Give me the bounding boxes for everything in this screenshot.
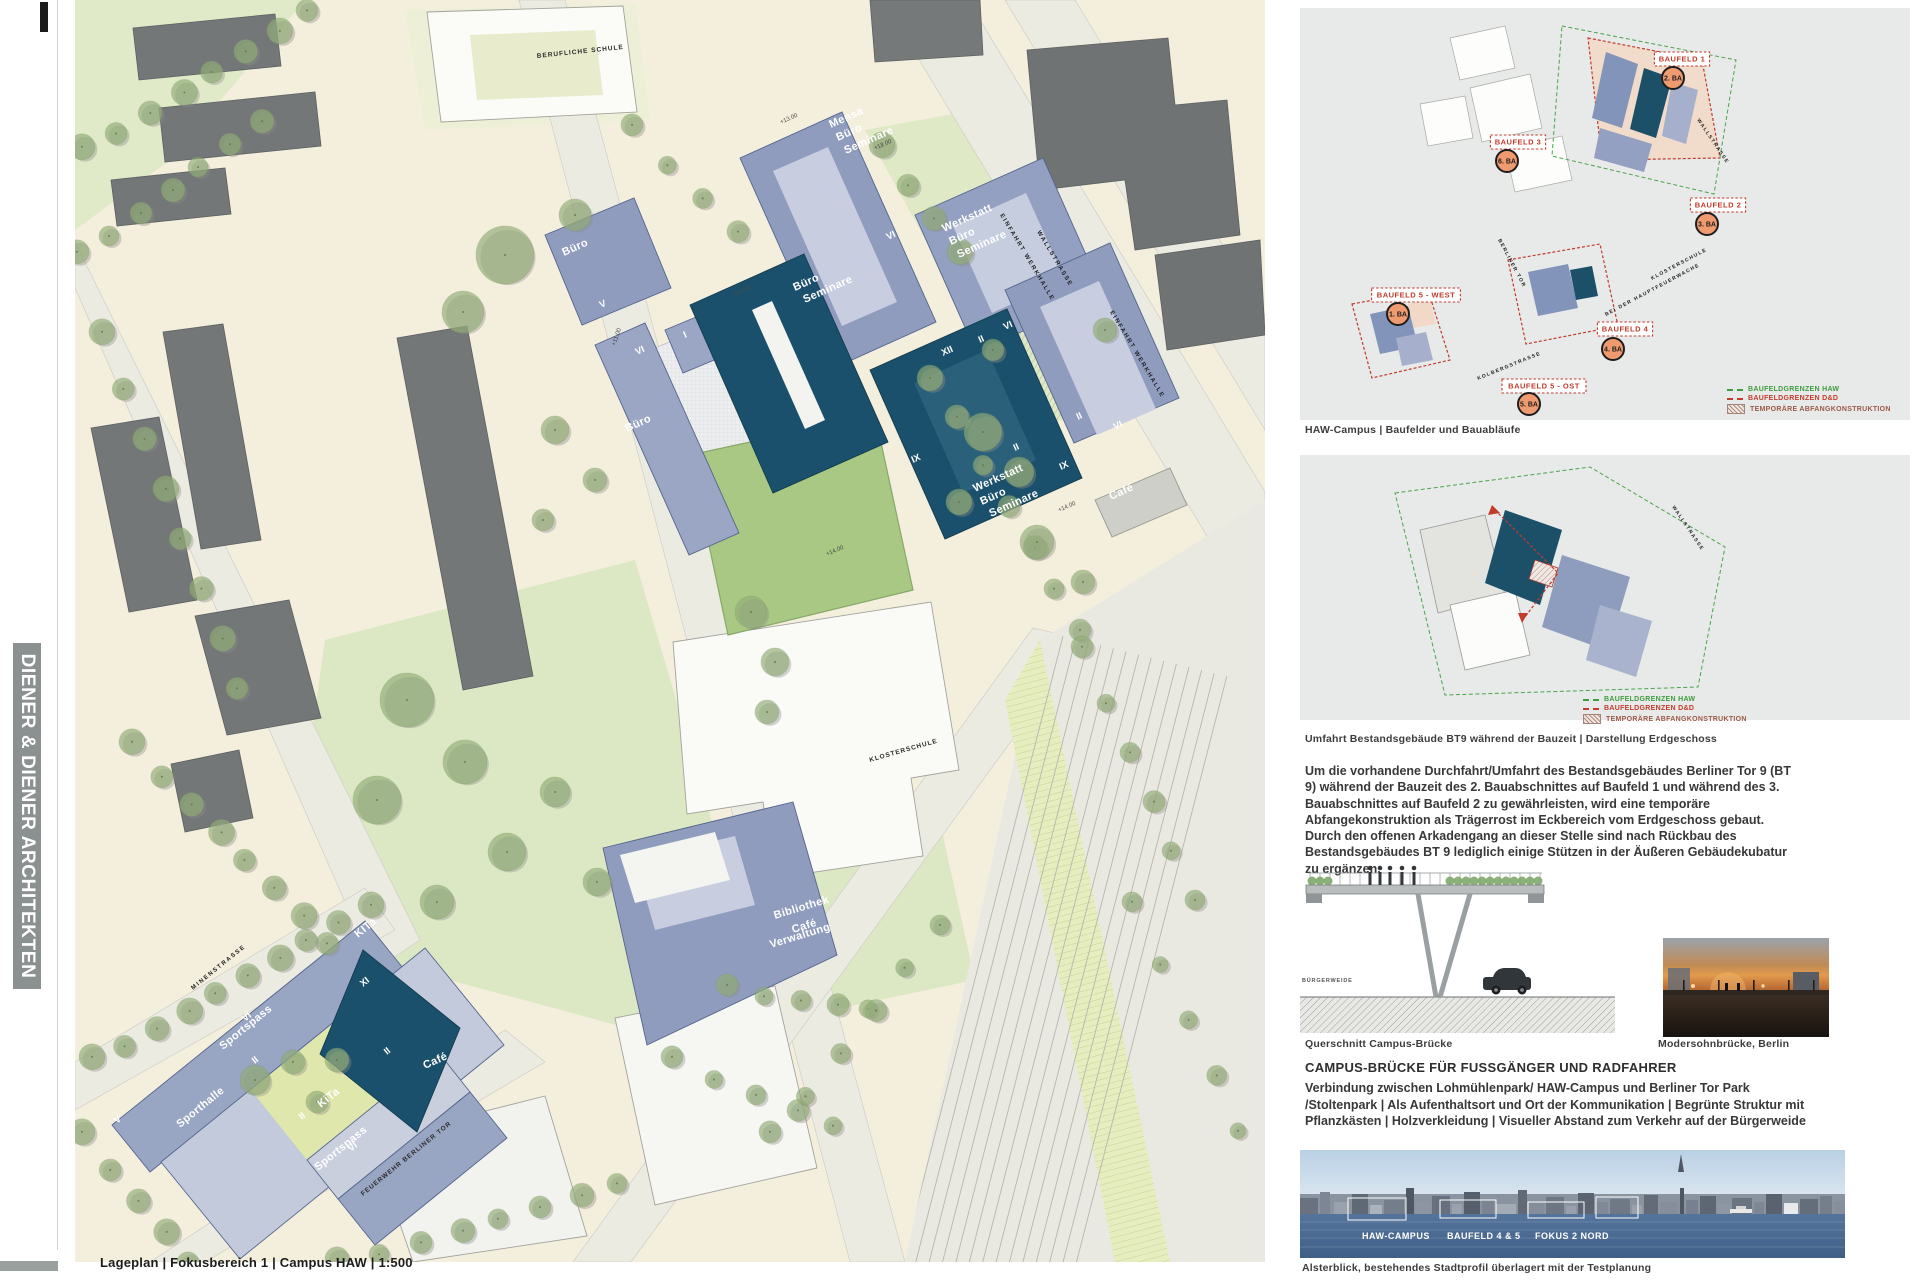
baufeld-label: BAUFELD 1: [1659, 55, 1706, 64]
legend-row: BAUFELDGRENZEN HAW: [1583, 696, 1747, 703]
legend-swatch-hatch: [1727, 404, 1745, 414]
svg-text:4. BA: 4. BA: [1604, 347, 1622, 354]
baufeld-label: BAUFELD 5 - OST: [1508, 382, 1580, 391]
legend-label: BAUFELDGRENZEN HAW: [1604, 696, 1695, 703]
diagram-umfahrt-bt9: WALLSTRASSE BAUFELDGRENZEN HAWBAUFELDGRE…: [1300, 455, 1910, 720]
legend-row: BAUFELDGRENZEN D&D: [1727, 395, 1891, 402]
street-label: KOLBERGSTRASSE: [1477, 351, 1542, 382]
car-silhouette: [1483, 968, 1531, 995]
legend-label: BAUFELDGRENZEN HAW: [1748, 386, 1839, 393]
photo-modersohnbruecke: [1663, 938, 1829, 1037]
bridge-body-text: Verbindung zwischen Lohmühlenpark/ HAW-C…: [1305, 1080, 1813, 1130]
svg-text:6. BA: 6. BA: [1498, 159, 1516, 166]
panorama-label: BAUFELD 4 & 5: [1447, 1231, 1521, 1241]
svg-text:3. BA: 3. BA: [1698, 222, 1716, 229]
panorama-labels: HAW-CAMPUSBAUFELD 4 & 5FOKUS 2 NORD: [1362, 1231, 1609, 1241]
sheet-edge-line: [57, 0, 58, 1250]
sheet-footer-bar: [0, 1261, 58, 1271]
diagram-baufelder: WALLSTRASSEBERLINER TORKOLBERGSTRASSEKLO…: [1300, 8, 1910, 420]
legend-label: TEMPORÄRE ABFANGKONSTRUKTION: [1606, 716, 1747, 723]
svg-text:2. BA: 2. BA: [1664, 76, 1682, 83]
legend-row: TEMPORÄRE ABFANGKONSTRUKTION: [1727, 404, 1891, 414]
diagram-baufelder-svg: WALLSTRASSEBERLINER TORKOLBERGSTRASSEKLO…: [1300, 8, 1910, 420]
legend-swatch-red: [1727, 398, 1743, 400]
diagram-umfahrt-svg: WALLSTRASSE: [1300, 455, 1910, 720]
street-label: BEI DER HAUPTFEUERWACHE: [1604, 262, 1701, 317]
diagram1-legend: BAUFELDGRENZEN HAWBAUFELDGRENZEN D&DTEMP…: [1727, 386, 1891, 414]
site-plan-svg: MensaBüroSeminareWerkstattBüroSeminareBü…: [75, 0, 1265, 1262]
legend-row: BAUFELDGRENZEN D&D: [1583, 705, 1747, 712]
panorama-label: HAW-CAMPUS: [1362, 1231, 1430, 1241]
legend-swatch-green: [1583, 699, 1599, 701]
architect-brand-bar: DIENER & DIENER ARCHITEKTEN: [13, 643, 41, 989]
svg-text:1. BA: 1. BA: [1389, 312, 1407, 319]
legend-label: TEMPORÄRE ABFANGKONSTRUKTION: [1750, 406, 1891, 413]
bridge-section-drawing: BÜRGERWEIDE: [1300, 855, 1618, 1037]
photo-alsterblick: HAW-CAMPUSBAUFELD 4 & 5FOKUS 2 NORD: [1300, 1150, 1845, 1258]
buergerweide-label: BÜRGERWEIDE: [1302, 977, 1353, 984]
legend-swatch-hatch: [1583, 714, 1601, 724]
legend-row: TEMPORÄRE ABFANGKONSTRUKTION: [1583, 714, 1747, 724]
baufeld-label: BAUFELD 4: [1602, 325, 1649, 334]
legend-label: BAUFELDGRENZEN D&D: [1748, 395, 1838, 402]
architect-brand-text: DIENER & DIENER ARCHITEKTEN: [16, 654, 38, 979]
street-label: WALLSTRASSE: [1670, 505, 1705, 552]
diagram2-caption: Umfahrt Bestandsgebäude BT9 während der …: [1305, 733, 1717, 745]
photo1-caption: Modersohnbrücke, Berlin: [1658, 1038, 1789, 1050]
bridge-heading: CAMPUS-BRÜCKE FÜR FUSSGÄNGER UND RADFAHR…: [1305, 1060, 1677, 1075]
baufeld-label: BAUFELD 3: [1495, 138, 1542, 147]
architecture-board: { "sidebar": { "brand": "DIENER & DIENER…: [0, 0, 1920, 1280]
diagram2-legend: BAUFELDGRENZEN HAWBAUFELDGRENZEN D&DTEMP…: [1583, 696, 1747, 724]
street-label: BERLINER TOR: [1496, 238, 1527, 289]
map-caption: Lageplan | Fokusbereich 1 | Campus HAW |…: [100, 1255, 413, 1270]
section-caption: Querschnitt Campus-Brücke: [1305, 1038, 1452, 1050]
legend-swatch-green: [1727, 389, 1743, 391]
right-column: WALLSTRASSEBERLINER TORKOLBERGSTRASSEKLO…: [1300, 0, 1913, 1280]
legend-swatch-red: [1583, 708, 1599, 710]
panorama-label: FOKUS 2 NORD: [1535, 1231, 1609, 1241]
legend-row: BAUFELDGRENZEN HAW: [1727, 386, 1891, 393]
legend-label: BAUFELDGRENZEN D&D: [1604, 705, 1694, 712]
sheet-registration-mark: [40, 2, 48, 32]
diagram1-caption: HAW-Campus | Baufelder und Bauabläufe: [1305, 424, 1520, 436]
baufeld-label: BAUFELD 5 - WEST: [1377, 291, 1455, 300]
svg-text:5. BA: 5. BA: [1520, 402, 1538, 409]
site-plan-map: MensaBüroSeminareWerkstattBüroSeminareBü…: [75, 0, 1265, 1262]
photo2-caption: Alsterblick, bestehendes Stadtprofil übe…: [1302, 1262, 1651, 1274]
baufeld-label: BAUFELD 2: [1695, 201, 1742, 210]
